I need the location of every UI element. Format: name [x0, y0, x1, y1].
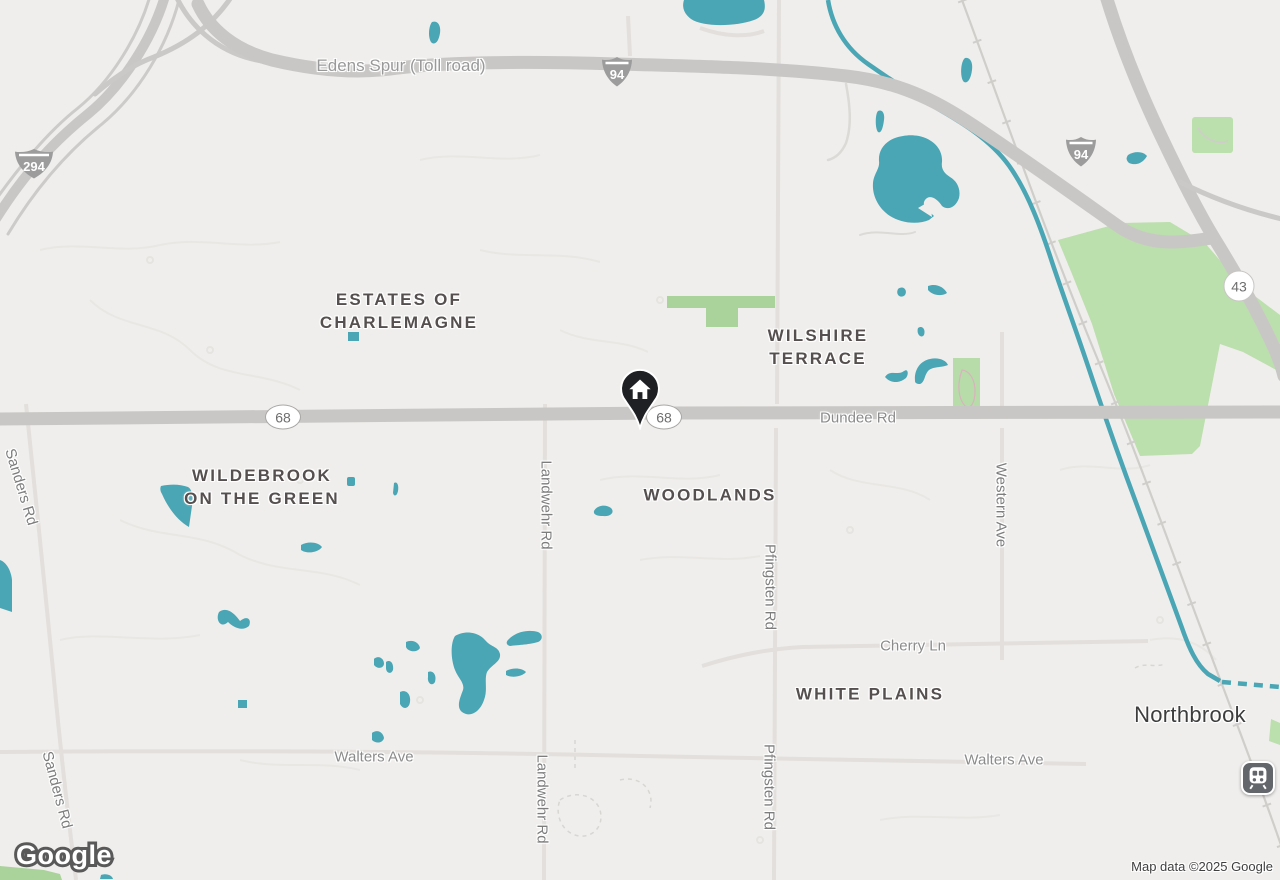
road-label-edens-spur: Edens Spur (Toll road)	[316, 56, 485, 76]
interstate-294-shield-icon: 294	[13, 147, 55, 181]
place-label-woodlands: WOODLANDS	[643, 484, 776, 507]
pond	[897, 288, 906, 297]
home-location-pin[interactable]	[616, 364, 664, 430]
road-label-dundee: Dundee Rd	[820, 410, 896, 427]
city-label-northbrook: Northbrook	[1134, 702, 1246, 728]
road-label-landwehr-bottom: Landwehr Rd	[534, 754, 551, 843]
place-label-estates-of-charlemagne: ESTATES OF CHARLEMAGNE	[320, 288, 478, 334]
road-label-walters-right: Walters Ave	[964, 752, 1043, 769]
pond	[347, 477, 355, 486]
road-label-western: Western Ave	[993, 463, 1010, 548]
road-label-pfingsten-bottom: Pfingsten Rd	[761, 744, 778, 830]
map-base-art	[0, 0, 1280, 880]
park-small-northeast	[1192, 117, 1233, 153]
place-label-wildebrook: WILDEBROOK ON THE GREEN	[184, 464, 340, 510]
place-label-wilshire-terrace: WILSHIRE TERRACE	[768, 324, 869, 370]
interstate-94-shield-icon: 94	[1064, 135, 1098, 169]
place-label-white-plains: WHITE PLAINS	[796, 683, 944, 706]
route-68-shield-icon: 68	[265, 405, 301, 430]
road-label-pfingsten-top: Pfingsten Rd	[762, 544, 779, 630]
park-east-sliver	[1269, 719, 1280, 745]
road-label-walters-left: Walters Ave	[334, 749, 413, 766]
map-background	[0, 0, 1280, 880]
road-label-landwehr-top: Landwehr Rd	[538, 460, 555, 549]
road-label-cherry: Cherry Ln	[880, 638, 946, 655]
route-43-shield-icon: 43	[1224, 271, 1255, 302]
google-logo[interactable]: GoogleGoogle	[16, 840, 112, 871]
pond	[238, 700, 247, 708]
map-attribution: Map data ©2025 Google	[1131, 859, 1273, 874]
train-station-icon[interactable]	[1241, 761, 1275, 795]
interstate-94-shield-icon: 94	[600, 55, 634, 89]
park-wilshire	[953, 358, 980, 413]
pin-body	[621, 370, 659, 428]
map-canvas[interactable]: Edens Spur (Toll road) Dundee Rd Sanders…	[0, 0, 1280, 880]
